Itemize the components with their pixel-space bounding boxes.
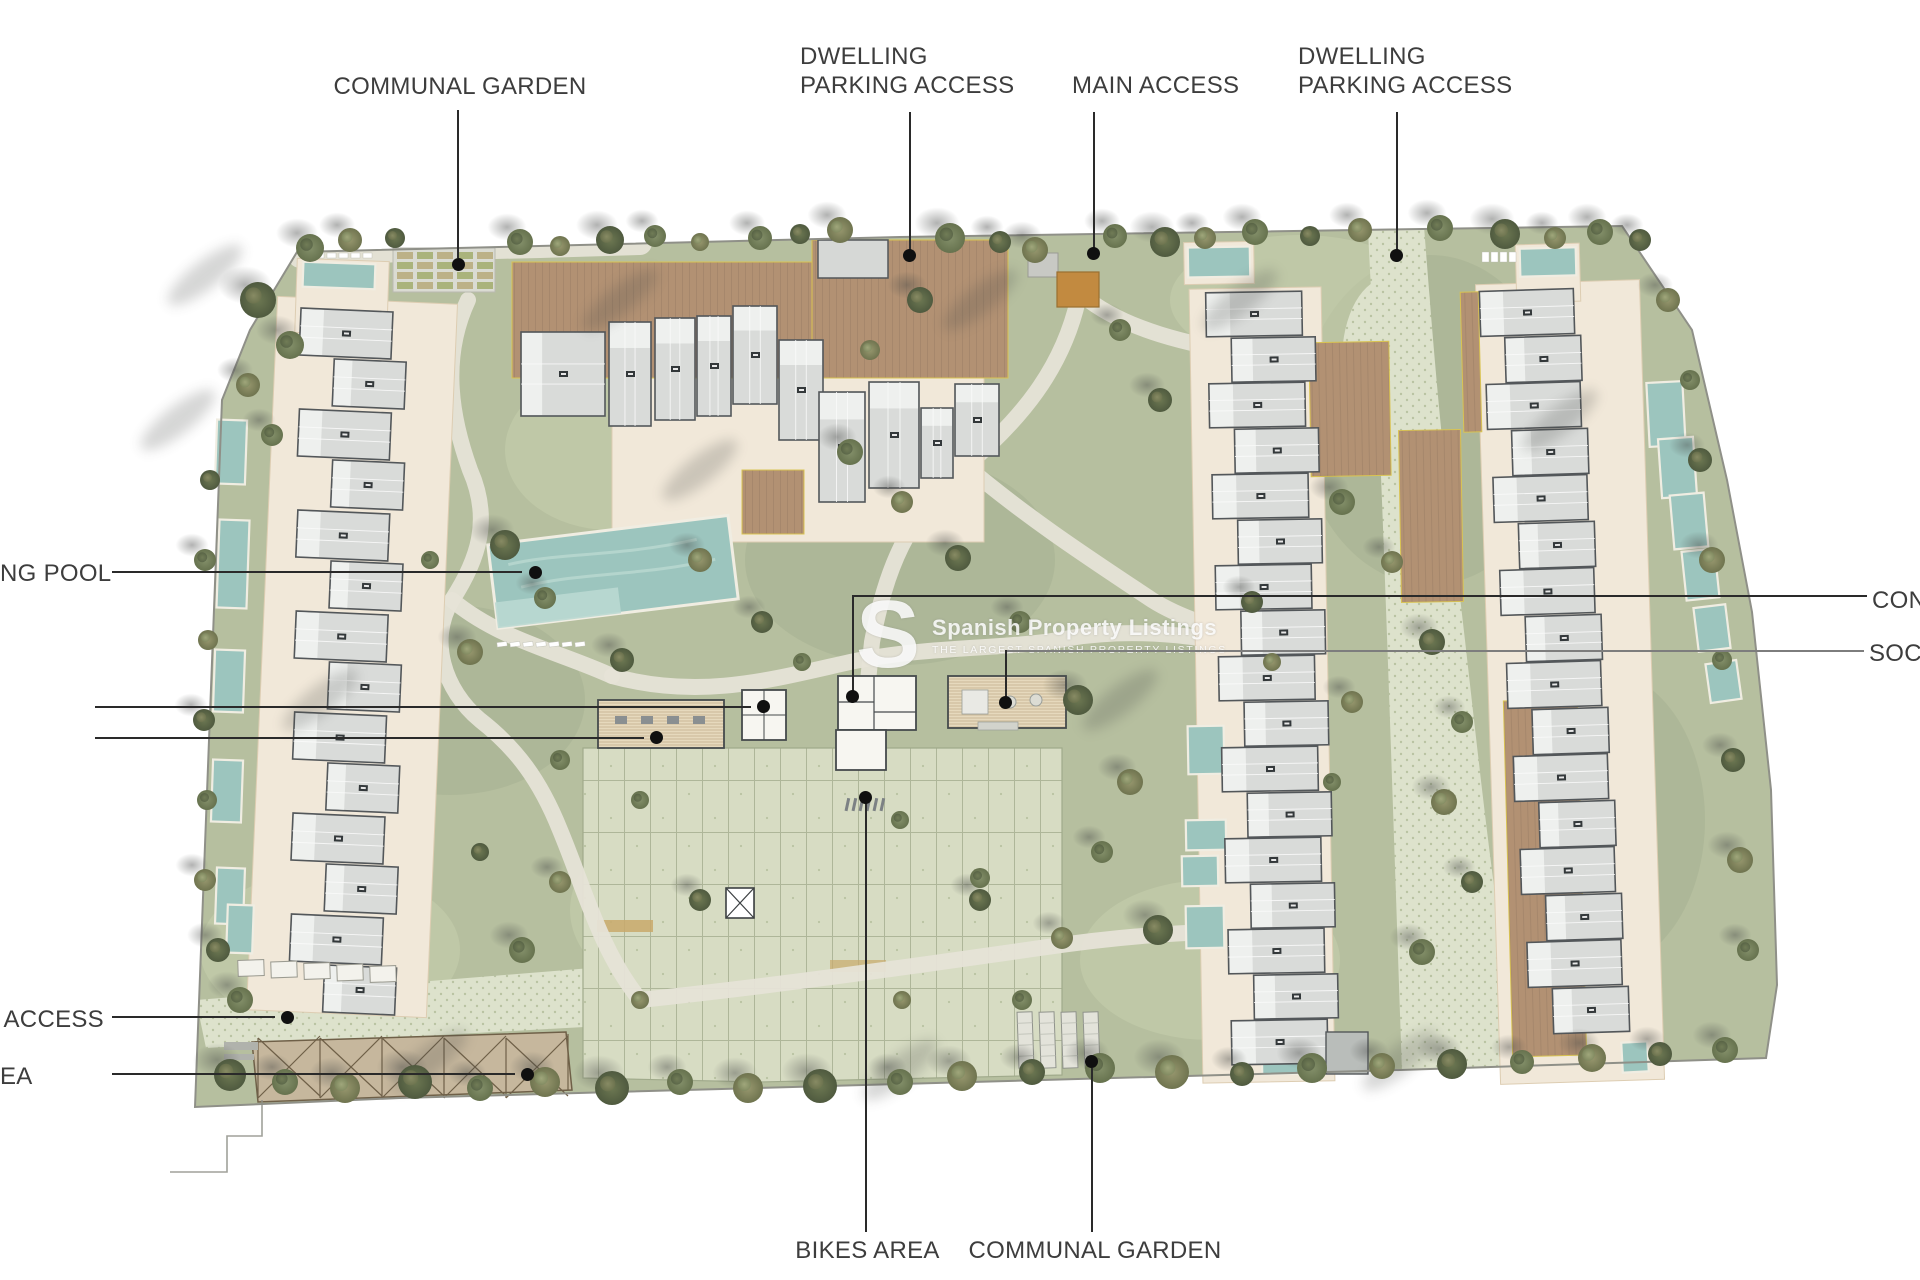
villa-roof bbox=[1493, 475, 1588, 523]
villa-roof bbox=[921, 408, 953, 478]
leader-line bbox=[852, 595, 854, 691]
leader-dot bbox=[903, 249, 916, 262]
villa-roof bbox=[955, 384, 999, 456]
villa-roof bbox=[1507, 661, 1602, 709]
annotation-bikes-area: BIKES AREA bbox=[770, 1236, 965, 1265]
pool bbox=[211, 759, 243, 822]
leader-dot bbox=[521, 1068, 534, 1081]
leader-line bbox=[1396, 112, 1398, 250]
leader-line bbox=[1006, 650, 1864, 652]
annotation-communal-garden-top: COMMUNAL GARDEN bbox=[330, 72, 590, 101]
sun-lounger bbox=[575, 641, 585, 647]
villa-roof bbox=[1225, 837, 1322, 883]
pool bbox=[1693, 604, 1730, 652]
villa-roof bbox=[1247, 792, 1332, 837]
leader-line bbox=[1005, 650, 1007, 697]
villa-roof bbox=[609, 322, 651, 426]
villa-roof bbox=[1518, 521, 1595, 568]
villa-roof bbox=[291, 813, 385, 864]
annotation-concierge: CON bbox=[1872, 586, 1920, 615]
villa-roof bbox=[1254, 974, 1339, 1019]
villa-roof bbox=[1479, 289, 1574, 337]
watermark: S Spanish Property Listings THE LARGEST … bbox=[856, 598, 1227, 673]
garden-box bbox=[238, 960, 265, 977]
leader-line bbox=[909, 112, 911, 250]
villa-roof bbox=[1527, 940, 1622, 988]
villa-roof bbox=[331, 460, 405, 510]
annotation-main-access: MAIN ACCESS bbox=[1072, 71, 1239, 100]
sun-lounger bbox=[562, 641, 572, 647]
leader-dot bbox=[529, 566, 542, 579]
central-parking-grid bbox=[583, 748, 1062, 1082]
villa-roof bbox=[324, 864, 398, 914]
boundary-notch bbox=[170, 1100, 262, 1172]
villa-roof bbox=[299, 308, 393, 359]
annotation-social: SOCIA bbox=[1869, 639, 1920, 668]
villa-roof bbox=[779, 340, 823, 440]
leader-line bbox=[112, 571, 522, 573]
annotation-access: ACCESS bbox=[0, 1005, 104, 1034]
villa-roof bbox=[1209, 382, 1306, 428]
watermark-title: Spanish Property Listings bbox=[932, 615, 1227, 641]
villa-roof bbox=[521, 332, 605, 416]
leader-dot bbox=[1085, 1055, 1098, 1068]
villa-roof bbox=[1532, 707, 1609, 754]
leader-dot bbox=[757, 700, 770, 713]
sun-lounger bbox=[510, 641, 520, 647]
pool bbox=[1188, 726, 1225, 775]
leader-line bbox=[112, 1073, 515, 1075]
villa-roof bbox=[1212, 473, 1309, 519]
villa-roof bbox=[1234, 428, 1319, 473]
villa-roof bbox=[297, 409, 391, 460]
leader-dot bbox=[281, 1011, 294, 1024]
leader-line bbox=[457, 110, 459, 258]
annotation-communal-garden-bottom: COMMUNAL GARDEN bbox=[960, 1236, 1230, 1265]
villa-roof bbox=[697, 316, 731, 416]
villa-roof bbox=[1500, 568, 1595, 616]
pool bbox=[303, 262, 376, 289]
timber-deck bbox=[742, 470, 804, 534]
watermark-logo: S bbox=[856, 598, 920, 673]
leader-line-unlabeled-1 bbox=[95, 706, 751, 708]
site-plan-canvas: S Spanish Property Listings THE LARGEST … bbox=[0, 0, 1920, 1280]
pool bbox=[216, 520, 249, 609]
villa-roof bbox=[1238, 519, 1323, 564]
timber-deck bbox=[1399, 429, 1464, 602]
leader-line bbox=[1093, 112, 1095, 248]
annotation-dwelling-parking-left: DWELLING PARKING ACCESS bbox=[800, 42, 1015, 100]
leader-dot bbox=[650, 731, 663, 744]
villa-roof bbox=[329, 561, 403, 611]
villa-roof bbox=[289, 914, 383, 965]
garden-box bbox=[304, 963, 331, 980]
leader-line bbox=[865, 803, 867, 1232]
communal-garden-top-plots bbox=[393, 248, 495, 292]
villa-roof bbox=[733, 306, 777, 404]
villa-roof bbox=[1520, 847, 1615, 895]
villa-roof bbox=[1539, 800, 1616, 847]
annotation-area: EA bbox=[0, 1062, 30, 1091]
villa-roof bbox=[296, 510, 390, 561]
pool bbox=[1186, 820, 1227, 851]
villa-roof bbox=[1525, 614, 1602, 661]
garden-box bbox=[370, 966, 397, 983]
annotation-swimming-pool: NG POOL bbox=[0, 559, 98, 588]
timber-deck bbox=[1309, 341, 1391, 476]
leader-dot bbox=[999, 696, 1012, 709]
leader-line bbox=[853, 595, 1867, 597]
villa-roof bbox=[1513, 754, 1608, 802]
annotation-dwelling-parking-right: DWELLING PARKING ACCESS bbox=[1298, 42, 1513, 100]
pool bbox=[1182, 856, 1219, 887]
villa-roof bbox=[655, 318, 695, 420]
sun-lounger bbox=[549, 641, 559, 647]
villa-roof bbox=[1228, 928, 1325, 974]
villa-roof bbox=[1222, 746, 1319, 792]
villa-roof bbox=[1241, 610, 1326, 655]
villa-roof bbox=[869, 382, 919, 488]
leader-dot bbox=[846, 690, 859, 703]
villa-roof bbox=[1250, 883, 1335, 928]
leader-dot bbox=[1087, 247, 1100, 260]
pool bbox=[1186, 906, 1225, 949]
villa-roof bbox=[332, 359, 406, 409]
pool bbox=[213, 649, 245, 712]
villa-roof bbox=[326, 763, 400, 813]
pool bbox=[1188, 246, 1251, 277]
villa-roof bbox=[1505, 335, 1582, 382]
villa-roof bbox=[1552, 986, 1629, 1033]
leader-dot bbox=[859, 791, 872, 804]
sun-lounger bbox=[536, 641, 546, 647]
sun-lounger bbox=[523, 641, 533, 647]
leader-line bbox=[112, 1016, 275, 1018]
leader-line-unlabeled-2 bbox=[95, 737, 644, 739]
leader-line bbox=[1091, 1068, 1093, 1232]
villa-roof bbox=[1546, 893, 1623, 940]
garden-box bbox=[337, 964, 364, 981]
parking-canopy bbox=[818, 240, 888, 278]
villa-roof bbox=[1231, 337, 1316, 382]
leader-dot bbox=[452, 258, 465, 271]
villa-roof bbox=[1244, 701, 1329, 746]
pool bbox=[226, 905, 254, 954]
sun-lounger bbox=[497, 641, 507, 647]
elevator-box bbox=[726, 888, 754, 918]
leader-dot bbox=[1390, 249, 1403, 262]
pool bbox=[1520, 247, 1577, 276]
villa-roof bbox=[294, 611, 388, 662]
main-access-gate bbox=[1057, 272, 1099, 307]
garden-box bbox=[271, 961, 298, 978]
timber-deck bbox=[1460, 292, 1482, 432]
